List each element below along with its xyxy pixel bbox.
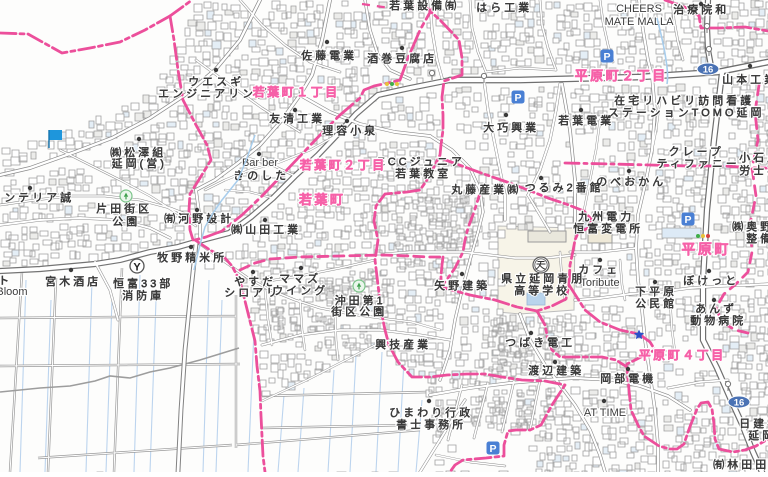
- svg-text:恒富変電所: 恒富変電所: [573, 222, 643, 236]
- svg-text:矢野建築: 矢野建築: [434, 279, 490, 293]
- svg-text:在宅リハビリ訪問看護: 在宅リハビリ訪問看護: [614, 94, 754, 108]
- svg-text:延岡(営): 延岡(営): [111, 157, 166, 171]
- svg-text:消防庫: 消防庫: [122, 289, 164, 303]
- svg-text:書士事務所: 書士事務所: [396, 418, 466, 432]
- svg-text:労士事: 労士事: [739, 164, 768, 178]
- svg-text:理容小泉: 理容小泉: [322, 124, 378, 138]
- svg-text:つばき電工: つばき電工: [505, 337, 575, 350]
- svg-text:P: P: [603, 51, 610, 63]
- svg-text:つるみ2番館: つるみ2番館: [524, 181, 603, 195]
- svg-text:ト: ト: [0, 276, 12, 288]
- svg-text:延岡: 延岡: [748, 430, 768, 443]
- svg-text:16: 16: [734, 398, 745, 409]
- svg-text:宮木酒店: 宮木酒店: [45, 275, 101, 289]
- svg-text:牧野精米所: 牧野精米所: [157, 251, 227, 265]
- svg-text:Toribute: Toribute: [580, 277, 619, 289]
- svg-text:ぼけっと: ぼけっと: [683, 275, 739, 288]
- svg-text:小石川: 小石川: [739, 152, 768, 165]
- svg-text:平原町４丁目: 平原町４丁目: [638, 349, 725, 363]
- svg-text:Bloom: Bloom: [0, 286, 28, 298]
- svg-text:丸藤産業㈱: 丸藤産業㈱: [451, 184, 521, 197]
- svg-text:県立延岡青朋: 県立延岡青朋: [501, 272, 585, 286]
- svg-text:日建学: 日建学: [739, 417, 768, 431]
- svg-text:大巧興業: 大巧興業: [483, 121, 539, 135]
- svg-text:あんず: あんず: [695, 303, 737, 316]
- svg-text:P: P: [514, 92, 521, 104]
- svg-text:CHEERS: CHEERS: [616, 3, 662, 15]
- svg-text:㈱山田工業: ㈱山田工業: [231, 224, 301, 237]
- svg-text:山本工業: 山本工業: [722, 73, 768, 87]
- svg-text:平原町２丁目: 平原町２丁目: [574, 69, 667, 84]
- svg-text:㈲河野設計: ㈲河野設計: [164, 212, 234, 226]
- svg-text:若葉電業: 若葉電業: [558, 114, 614, 128]
- svg-text:ひまわり行政: ひまわり行政: [389, 406, 473, 420]
- svg-text:MATE MALLA: MATE MALLA: [605, 16, 675, 28]
- svg-text:ママズ: ママズ: [279, 272, 321, 286]
- svg-text:はら工業: はら工業: [476, 2, 532, 15]
- svg-text:九州電力: 九州電力: [578, 211, 634, 224]
- svg-text:ウエスギ: ウエスギ: [188, 76, 244, 89]
- svg-text:若葉町: 若葉町: [298, 193, 346, 208]
- svg-text:下平原: 下平原: [635, 287, 677, 299]
- svg-text:渡辺建築: 渡辺建築: [528, 364, 584, 378]
- svg-text:酒巻豆腐店: 酒巻豆腐店: [367, 52, 437, 66]
- svg-text:ECCジュニア: ECCジュニア: [377, 157, 464, 169]
- svg-text:動物病院: 動物病院: [690, 314, 746, 328]
- svg-text:㈲林田田石: ㈲林田田石: [713, 458, 768, 472]
- svg-text:インテリア誠: インテリア誠: [0, 192, 74, 205]
- svg-text:若葉町２丁目: 若葉町２丁目: [298, 158, 386, 173]
- svg-text:恒富33部: 恒富33部: [113, 277, 173, 291]
- svg-text:友清工業: 友清工業: [269, 112, 325, 126]
- svg-text:P: P: [684, 214, 691, 226]
- svg-text:㈱奥野: ㈱奥野: [732, 220, 768, 234]
- svg-text:P: P: [489, 443, 496, 455]
- svg-text:若葉町１丁目: 若葉町１丁目: [251, 85, 339, 100]
- svg-text:ティファニー: ティファニー: [656, 159, 739, 171]
- svg-text:公民館: 公民館: [635, 297, 677, 311]
- svg-text:高等学校: 高等学校: [514, 284, 570, 298]
- svg-text:ウイング: ウイング: [272, 284, 328, 298]
- svg-text:公園: 公園: [112, 216, 140, 229]
- svg-text:片田街区: 片田街区: [96, 202, 152, 216]
- svg-text:16: 16: [703, 65, 714, 76]
- svg-text:整備: 整備: [746, 232, 768, 246]
- svg-text:若葉設備㈲: 若葉設備㈲: [389, 0, 459, 13]
- svg-text:AT TIME: AT TIME: [584, 407, 626, 419]
- svg-text:興技産業: 興技産業: [375, 339, 431, 352]
- svg-text:クレープ: クレープ: [668, 146, 723, 159]
- svg-text:Y: Y: [133, 262, 141, 274]
- svg-text:若葉教室: 若葉教室: [395, 167, 451, 181]
- svg-text:ステーションTOMO延岡: ステーションTOMO延岡: [608, 107, 765, 120]
- svg-text:佐藤電業: 佐藤電業: [301, 49, 357, 63]
- svg-text:街区公園: 街区公園: [331, 305, 387, 319]
- svg-text:平原町: 平原町: [681, 242, 731, 258]
- svg-text:岡部電機: 岡部電機: [600, 372, 656, 386]
- svg-text:のべおかん: のべおかん: [596, 176, 666, 189]
